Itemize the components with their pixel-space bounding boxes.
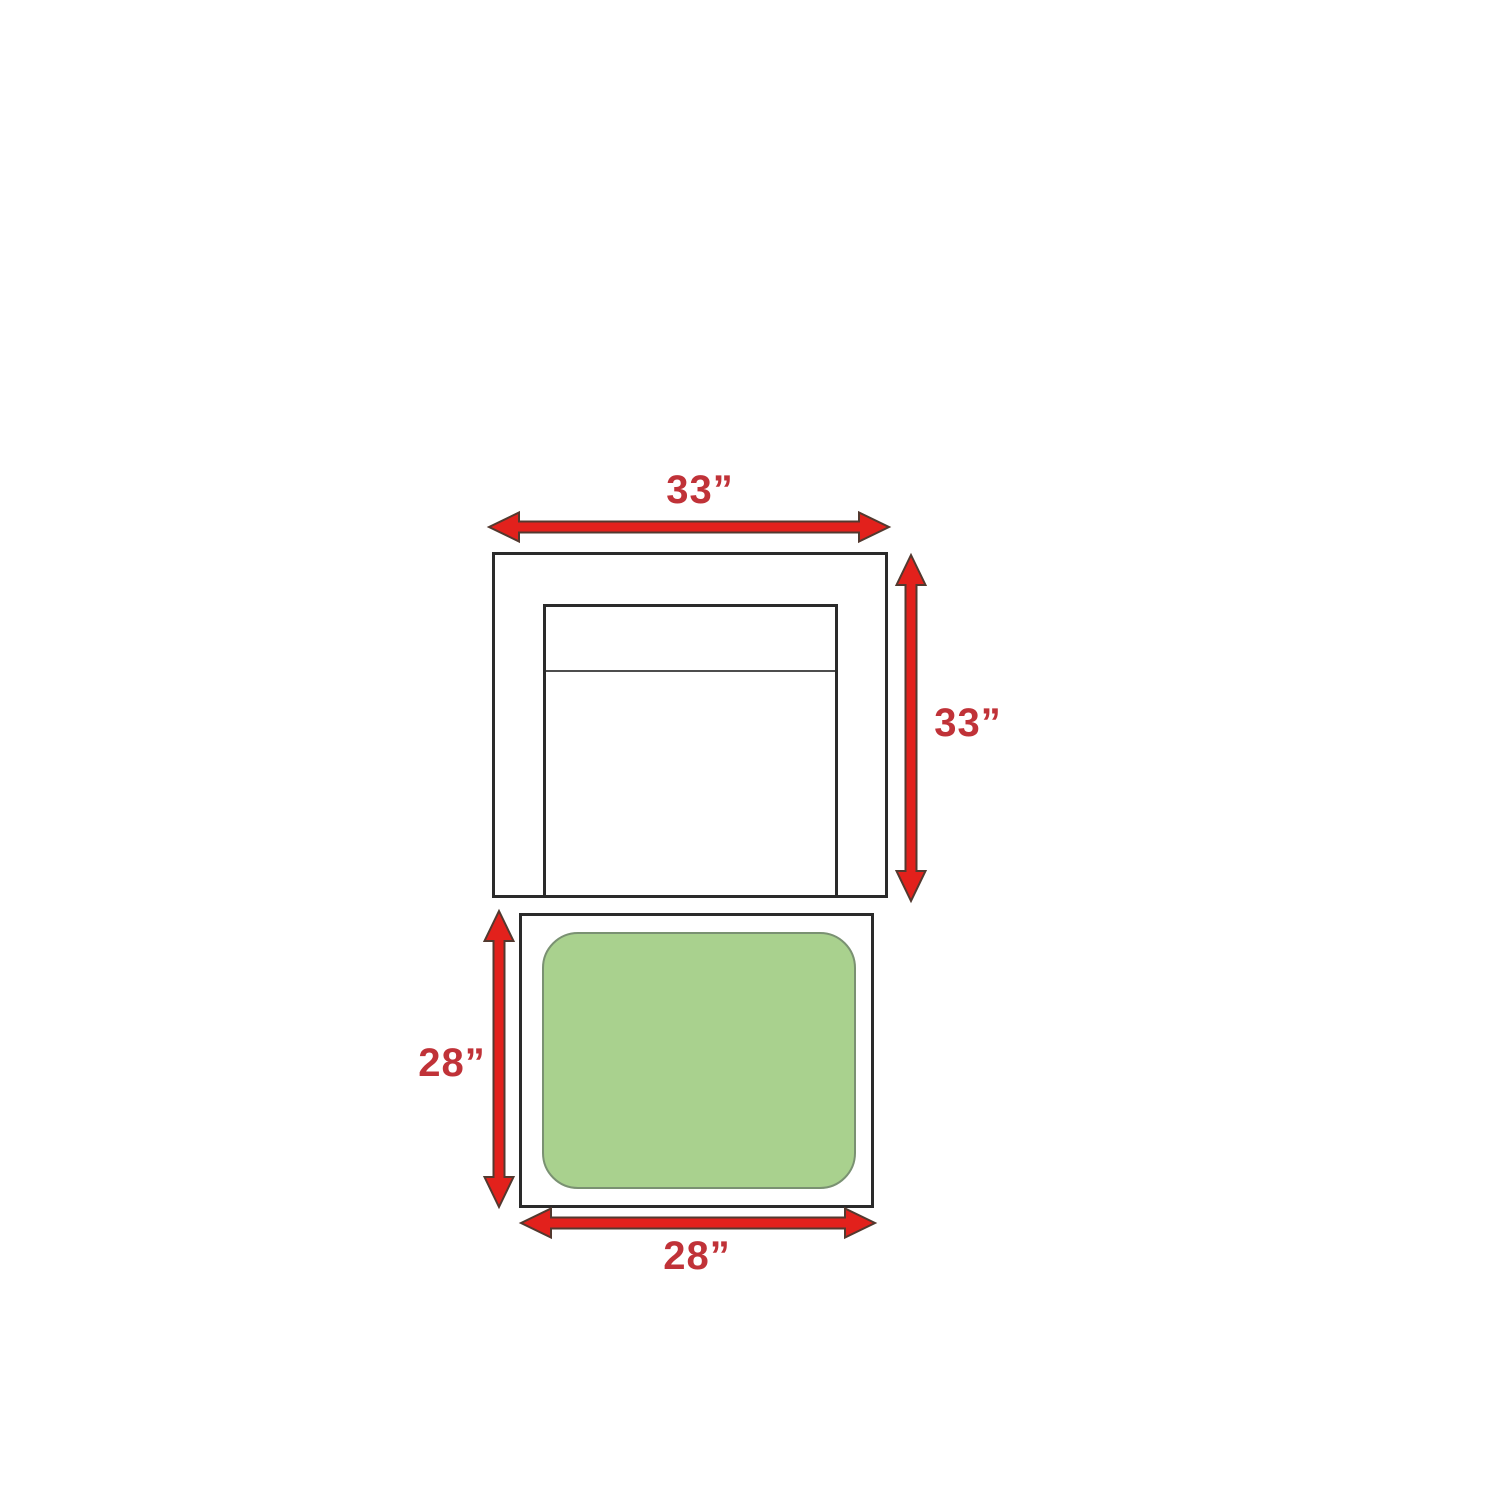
chair-width-arrow [488, 511, 890, 543]
ottoman-outline [519, 913, 874, 1208]
ottoman-cushion [542, 932, 856, 1189]
chair-seat [543, 604, 838, 895]
dimension-diagram: 33” 33” 28” 28” [0, 0, 1500, 1500]
ottoman-height-arrow [483, 910, 515, 1208]
chair-width-label: 33” [600, 468, 800, 512]
ottoman-width-label: 28” [597, 1234, 797, 1278]
chair-height-label: 33” [868, 701, 1068, 745]
chair-backrest-line [546, 670, 835, 672]
chair-outline [492, 552, 888, 898]
